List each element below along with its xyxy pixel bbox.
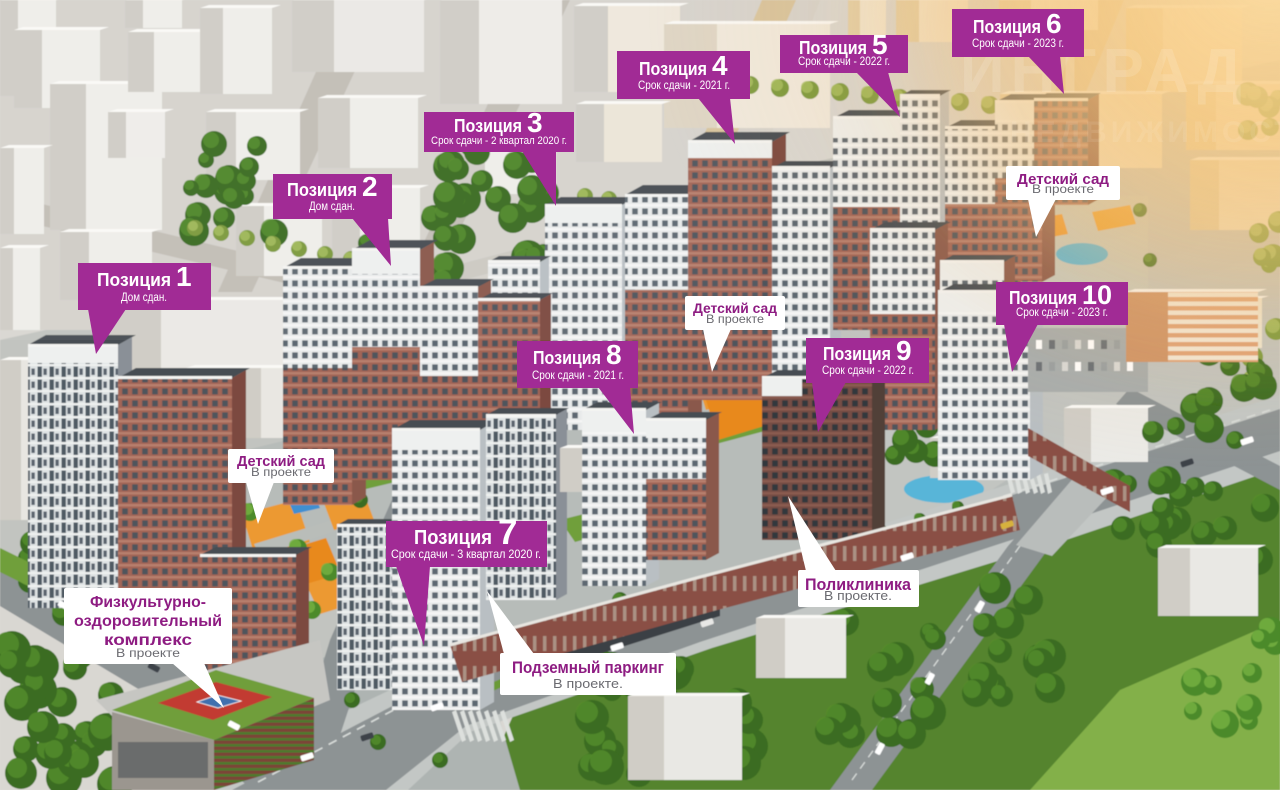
svg-text:НЕДВИЖИМОСТЬ: НЕДВИЖИМОСТЬ: [1010, 116, 1280, 149]
svg-text:Срок сдачи - 2023 г.: Срок сдачи - 2023 г.: [972, 38, 1064, 50]
svg-text:Позиция: Позиция: [533, 348, 601, 368]
svg-text:Подземный паркинг: Подземный паркинг: [512, 658, 664, 677]
svg-text:Позиция: Позиция: [639, 59, 707, 79]
svg-text:В проекте: В проекте: [251, 465, 311, 479]
svg-text:Срок сдачи - 3 квартал 2020 г: Срок сдачи - 3 квартал 2020 г.: [391, 547, 541, 561]
svg-text:Позиция: Позиция: [799, 38, 867, 58]
svg-text:8: 8: [606, 339, 622, 370]
svg-text:В проекте: В проекте: [116, 646, 180, 660]
svg-text:Позиция: Позиция: [414, 527, 492, 549]
svg-text:3: 3: [527, 107, 543, 138]
svg-text:Позиция: Позиция: [454, 116, 522, 136]
svg-text:Дом сдан.: Дом сдан.: [121, 292, 167, 304]
svg-text:Срок сдачи - 2021 г.: Срок сдачи - 2021 г.: [638, 80, 730, 92]
svg-text:В проекте.: В проекте.: [824, 588, 892, 603]
svg-text:10: 10: [1082, 280, 1112, 310]
svg-text:оздоровительный: оздоровительный: [74, 613, 222, 630]
svg-text:В проекте.: В проекте.: [553, 676, 623, 691]
svg-text:4: 4: [712, 50, 728, 81]
svg-text:2: 2: [362, 171, 378, 202]
svg-text:Позиция: Позиция: [973, 17, 1041, 37]
svg-text:В проекте: В проекте: [706, 314, 764, 326]
svg-text:Срок сдачи - 2021 г.: Срок сдачи - 2021 г.: [532, 370, 624, 382]
svg-text:6: 6: [1046, 8, 1062, 39]
svg-text:9: 9: [896, 335, 912, 366]
svg-text:Позиция: Позиция: [1009, 288, 1077, 308]
svg-text:Дом сдан.: Дом сдан.: [309, 201, 355, 213]
svg-text:В проекте: В проекте: [1032, 182, 1094, 196]
svg-text:Срок сдачи - 2022 г.: Срок сдачи - 2022 г.: [798, 56, 890, 68]
svg-text:Позиция: Позиция: [823, 344, 891, 364]
svg-text:1: 1: [176, 261, 192, 292]
svg-text:Срок сдачи - 2 квартал 2020 г.: Срок сдачи - 2 квартал 2020 г.: [431, 135, 567, 147]
svg-text:Позиция: Позиция: [287, 180, 357, 200]
svg-text:Физкультурно-: Физкультурно-: [90, 594, 206, 611]
svg-text:Срок сдачи - 2022 г.: Срок сдачи - 2022 г.: [822, 365, 914, 377]
svg-text:Позиция: Позиция: [97, 270, 171, 290]
svg-text:Срок сдачи - 2023 г.: Срок сдачи - 2023 г.: [1016, 307, 1108, 319]
